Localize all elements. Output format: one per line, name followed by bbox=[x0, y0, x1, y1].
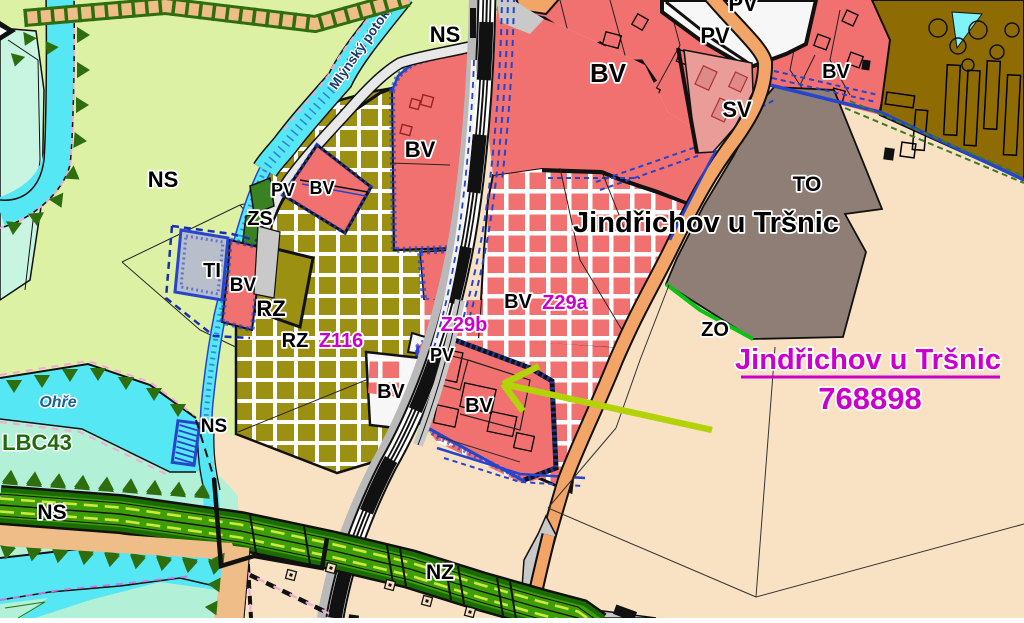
svg-text:BV: BV bbox=[377, 381, 405, 403]
svg-text:TI: TI bbox=[203, 260, 221, 282]
svg-text:Jindřichov u Tršnic: Jindřichov u Tršnic bbox=[573, 207, 839, 239]
svg-text:SV: SV bbox=[722, 97, 752, 122]
svg-text:TO: TO bbox=[793, 173, 822, 196]
svg-text:NS: NS bbox=[201, 416, 227, 437]
svg-text:PV: PV bbox=[728, 0, 758, 16]
svg-text:768898: 768898 bbox=[818, 381, 921, 416]
svg-text:PV: PV bbox=[271, 180, 295, 200]
svg-text:Ohře: Ohře bbox=[39, 394, 76, 411]
svg-text:ZS: ZS bbox=[247, 208, 273, 230]
svg-text:NZ: NZ bbox=[426, 561, 454, 584]
svg-text:BV: BV bbox=[309, 178, 334, 198]
svg-text:NS: NS bbox=[148, 167, 179, 192]
svg-text:BV: BV bbox=[465, 395, 493, 417]
svg-text:BV: BV bbox=[822, 61, 850, 83]
svg-text:Z29a: Z29a bbox=[542, 292, 588, 314]
svg-text:Z29b: Z29b bbox=[441, 314, 488, 336]
svg-text:BV: BV bbox=[230, 275, 257, 296]
svg-text:BV: BV bbox=[405, 137, 436, 162]
svg-text:LBC43: LBC43 bbox=[2, 430, 72, 455]
svg-text:RZ: RZ bbox=[256, 296, 285, 321]
svg-text:RZ: RZ bbox=[282, 330, 309, 352]
svg-text:NS: NS bbox=[430, 22, 461, 47]
svg-text:Jindřichov u Tršnic: Jindřichov u Tršnic bbox=[735, 344, 1001, 376]
svg-text:BV: BV bbox=[504, 291, 532, 313]
svg-text:PV: PV bbox=[700, 23, 730, 48]
svg-text:PV: PV bbox=[430, 345, 454, 365]
svg-text:ZO: ZO bbox=[701, 319, 729, 341]
svg-text:BV: BV bbox=[590, 58, 627, 88]
svg-text:Z116: Z116 bbox=[319, 330, 363, 352]
svg-text:NS: NS bbox=[37, 501, 66, 524]
